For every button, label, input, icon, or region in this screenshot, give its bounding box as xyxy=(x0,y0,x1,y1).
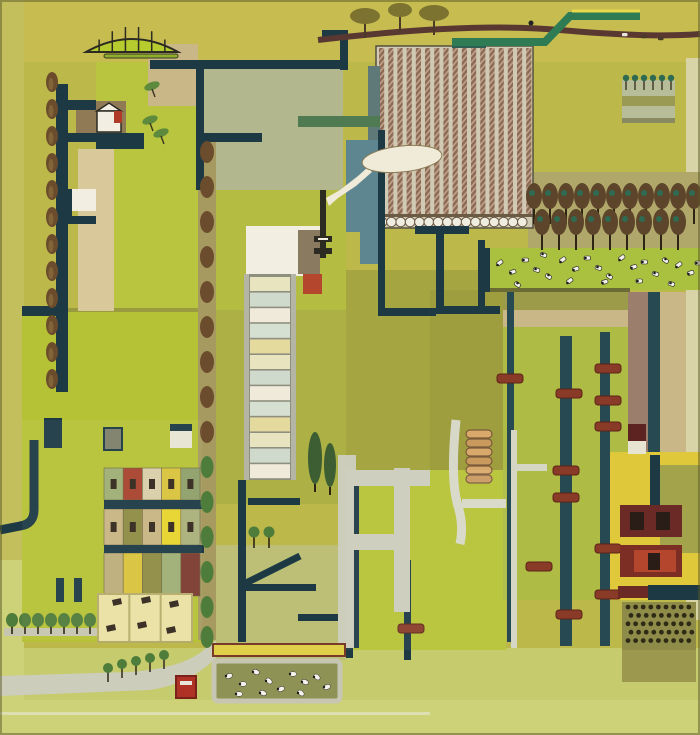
orchard-tree xyxy=(534,209,550,235)
road-tree-green xyxy=(201,491,214,513)
orchard-leaf xyxy=(609,190,615,196)
greenhouse-band xyxy=(250,417,290,431)
vine-dot xyxy=(651,630,656,635)
scallop-bump xyxy=(433,217,443,227)
vine-dot xyxy=(659,630,664,635)
vine-dot xyxy=(674,630,679,635)
crop-stripe xyxy=(416,48,421,216)
orchard-tree xyxy=(653,209,669,235)
vine-dot xyxy=(644,630,649,635)
vine-dot xyxy=(679,621,684,626)
vine-dot xyxy=(633,621,638,626)
vine-dot xyxy=(641,605,646,610)
crop-stripe xyxy=(453,48,458,216)
scallop-bump xyxy=(499,217,509,227)
field-stripes xyxy=(379,48,531,216)
vine-dot xyxy=(679,638,684,643)
sheep-head xyxy=(323,686,325,688)
cow-patch xyxy=(630,267,633,270)
vine-dot xyxy=(656,621,661,626)
railway-tie xyxy=(595,364,621,373)
crop-stripe xyxy=(407,48,412,216)
scallop-bump xyxy=(508,217,518,227)
poplar-highlight xyxy=(49,375,54,387)
curve-tree xyxy=(117,659,127,669)
road-tree-brown xyxy=(200,281,214,303)
railway-tie xyxy=(553,466,579,475)
road-tree-brown xyxy=(200,176,214,198)
crop-stripe xyxy=(508,48,513,216)
vine-dot xyxy=(664,638,669,643)
poplar-highlight xyxy=(49,105,54,117)
vine-dot xyxy=(626,605,631,610)
road-center-horizontal xyxy=(378,308,436,316)
tiny-vehicle xyxy=(658,37,664,40)
cow-patch xyxy=(601,282,604,285)
tree-blob xyxy=(388,3,412,17)
vine-dot xyxy=(682,613,687,618)
scallop-bump xyxy=(471,217,481,227)
orchard-tree xyxy=(558,183,574,209)
orchard-leaf xyxy=(529,190,535,196)
railway-tie xyxy=(526,562,552,571)
vine-dot xyxy=(648,621,653,626)
orchard-leaf xyxy=(571,216,577,222)
cow-patch xyxy=(572,269,575,272)
road-left-spur-mid xyxy=(22,306,62,316)
painting-canvas xyxy=(0,0,700,735)
mini-tree xyxy=(659,75,665,81)
cow-patch xyxy=(636,280,639,283)
pasture-bottom-line xyxy=(487,288,630,292)
vine-dot xyxy=(671,605,676,610)
mini-tree xyxy=(668,75,674,81)
mini-orchard-band xyxy=(622,96,675,106)
greenhouse-band xyxy=(250,464,290,478)
cow-patch xyxy=(516,282,519,285)
scallop-bump xyxy=(387,217,397,227)
cow-patch xyxy=(687,273,690,276)
vine-dot xyxy=(689,613,694,618)
vine-dot xyxy=(671,621,676,626)
red-van-window xyxy=(180,681,192,685)
arch-segment xyxy=(466,430,492,438)
vine-dot xyxy=(648,638,653,643)
awning-underline xyxy=(104,54,178,58)
greenhouse-band xyxy=(250,324,290,338)
crop-stripe xyxy=(517,48,522,216)
tree-lined-road-trees xyxy=(200,141,214,648)
arch-segment xyxy=(466,457,492,465)
crop-stripe xyxy=(499,48,504,216)
mini-tree xyxy=(623,75,629,81)
right-plot-olive-band xyxy=(503,292,630,310)
orchard-leaf xyxy=(561,190,567,196)
red-van xyxy=(176,676,196,698)
curve-tree xyxy=(145,653,155,663)
road-h-bottom xyxy=(436,306,500,314)
greenhouse-band xyxy=(250,402,290,416)
orchard-leaf xyxy=(673,190,679,196)
road-tree-green xyxy=(201,456,214,478)
crop-stripe xyxy=(443,48,448,216)
cow-patch xyxy=(496,264,499,267)
greenhouse-band xyxy=(250,293,290,307)
orchard-leaf xyxy=(605,216,611,222)
greenhouse-band xyxy=(250,449,290,463)
notch-border-h xyxy=(64,216,96,224)
poplar-highlight xyxy=(49,213,54,225)
cow-patch xyxy=(534,268,537,271)
orchard-leaf xyxy=(689,190,695,196)
scallop-bump xyxy=(405,217,415,227)
orchard-leaf xyxy=(641,190,647,196)
orchard-tree xyxy=(526,183,542,209)
vine-dot xyxy=(644,613,649,618)
cow-patch xyxy=(675,266,678,269)
orchard-leaf xyxy=(537,216,543,222)
vine-dot xyxy=(633,605,638,610)
road-tree-brown xyxy=(200,246,214,268)
orchard-leaf xyxy=(593,190,599,196)
speckle-plot-lower xyxy=(622,650,696,682)
road-left-vertical xyxy=(56,84,68,392)
curve-tree xyxy=(159,650,169,660)
vine-dot xyxy=(667,613,672,618)
mini-tree xyxy=(641,75,647,81)
sheep-head xyxy=(235,693,237,695)
bottom-horizontal-1 xyxy=(244,584,316,591)
scallop-bump xyxy=(518,217,528,227)
orchard-tree xyxy=(602,209,618,235)
poplar-highlight xyxy=(49,132,54,144)
cow-patch xyxy=(522,259,525,262)
scallop-bump xyxy=(415,217,425,227)
orchard-leaf xyxy=(625,190,631,196)
tiny-figure xyxy=(529,21,534,26)
poplar-highlight xyxy=(49,240,54,252)
orchard-tree xyxy=(551,209,567,235)
railway-tie xyxy=(595,544,621,553)
vine-dot xyxy=(633,638,638,643)
orchard-leaf xyxy=(656,216,662,222)
vine-dot xyxy=(629,630,634,635)
white-notch xyxy=(72,189,96,211)
railway-tie xyxy=(595,590,621,599)
red-building xyxy=(303,274,322,294)
road-sage-spur xyxy=(200,133,262,142)
crop-stripe xyxy=(480,48,485,216)
vine-dot xyxy=(659,613,664,618)
orchard-tree xyxy=(638,183,654,209)
sheep-head xyxy=(225,675,227,677)
curve-tree xyxy=(103,663,113,673)
mini-tree xyxy=(650,75,656,81)
cow-patch xyxy=(559,261,562,264)
mini-orchard-path xyxy=(622,118,675,123)
sheep-head xyxy=(313,676,315,678)
poplar-highlight xyxy=(49,78,54,90)
greenhouse-band xyxy=(250,371,290,385)
sheep-pen xyxy=(214,661,340,701)
estate-red-door xyxy=(648,553,660,570)
texture-wash-2 xyxy=(346,470,506,650)
road-tree-brown xyxy=(200,421,214,443)
sheep-head xyxy=(301,681,303,683)
railway-tie xyxy=(553,493,579,502)
greenhouse-band xyxy=(250,308,290,322)
railway-tie xyxy=(595,422,621,431)
field-tree xyxy=(264,527,275,538)
vine-dot xyxy=(641,638,646,643)
bottom-left-vertical xyxy=(238,480,246,642)
estate-navy-band xyxy=(648,585,700,600)
greenhouse-rail-left xyxy=(244,274,249,480)
vine-dot xyxy=(671,638,676,643)
road-sage-left-border xyxy=(196,62,204,190)
estate-maroon-block xyxy=(620,505,682,537)
cow-patch xyxy=(618,259,621,262)
road-h-vert2 xyxy=(478,240,485,310)
tiny-vehicle xyxy=(641,35,647,38)
tree-blob xyxy=(350,8,380,24)
green-lower-band xyxy=(298,116,380,127)
cow-patch xyxy=(596,266,599,269)
road-tree-brown xyxy=(200,386,214,408)
vine-dot xyxy=(686,605,691,610)
tan-strip-vertical xyxy=(78,149,114,311)
vine-dot xyxy=(682,630,687,635)
crop-stripe xyxy=(462,48,467,216)
poplar-highlight xyxy=(49,294,54,306)
cow-patch xyxy=(608,274,611,277)
orchard-tree xyxy=(619,209,635,235)
vine-dot xyxy=(656,638,661,643)
vine-dot xyxy=(664,621,669,626)
curve-tree xyxy=(131,656,141,666)
orchard-leaf xyxy=(657,190,663,196)
crop-stripe xyxy=(489,48,494,216)
texture-wash-1 xyxy=(22,420,202,640)
orchard-tree xyxy=(606,183,622,209)
vine-dot xyxy=(656,605,661,610)
arch-segment xyxy=(466,448,492,456)
orchard-leaf xyxy=(673,216,679,222)
orchard-leaf xyxy=(639,216,645,222)
scallop-bump xyxy=(452,217,462,227)
poplar-highlight xyxy=(49,348,54,360)
orchard-tree xyxy=(574,183,590,209)
road-tree-green xyxy=(201,526,214,548)
poplar-highlight xyxy=(49,321,54,333)
cow-patch xyxy=(584,257,587,260)
orchard-tree xyxy=(670,183,686,209)
orchard-leaf xyxy=(622,216,628,222)
pasture-left-border xyxy=(484,248,490,292)
vine-dot xyxy=(626,621,631,626)
aerial-farmland-painting xyxy=(0,0,700,735)
cow-patch xyxy=(566,282,569,285)
orchard-leaf xyxy=(577,190,583,196)
chimney-pole xyxy=(320,190,326,258)
sheep-head xyxy=(277,688,279,690)
vine-dot xyxy=(664,605,669,610)
estate-maroon-door-1 xyxy=(630,512,644,530)
road-top-horizontal xyxy=(150,60,345,69)
railway-tie xyxy=(556,389,582,398)
vine-dot xyxy=(626,638,631,643)
vine-dot xyxy=(651,613,656,618)
greenhouse-rail-right xyxy=(291,274,296,480)
vine-dot xyxy=(667,630,672,635)
crop-stripe xyxy=(425,48,430,216)
sheep-head xyxy=(265,680,267,682)
background-bottom-pale xyxy=(0,700,700,735)
scallop-bump xyxy=(424,217,434,227)
estate-maroon-bar xyxy=(618,586,650,598)
vine-dot xyxy=(648,605,653,610)
right-plot-road-a xyxy=(560,336,572,646)
chimney-crossbar-2 xyxy=(314,248,332,254)
scallop-bump xyxy=(396,217,406,227)
greenhouse-band xyxy=(250,386,290,400)
scallop-bump xyxy=(489,217,499,227)
cow-patch xyxy=(695,262,698,265)
orchard-leaf xyxy=(554,216,560,222)
orchard-tree xyxy=(568,209,584,235)
cow-patch xyxy=(669,282,672,285)
poplar-highlight xyxy=(49,267,54,279)
orchard-tree xyxy=(670,209,686,235)
scallop-bump xyxy=(443,217,453,227)
vine-dot xyxy=(686,638,691,643)
road-tree-green xyxy=(201,561,214,583)
vine-dot xyxy=(674,613,679,618)
orchard-leaf xyxy=(588,216,594,222)
crop-stripe xyxy=(434,48,439,216)
road-tree-green xyxy=(201,596,214,618)
greenhouse-band xyxy=(250,339,290,353)
orchard-tree xyxy=(585,209,601,235)
sheep-head xyxy=(259,692,261,694)
scallop-bump xyxy=(461,217,471,227)
orchard-tree xyxy=(654,183,670,209)
small-white-block xyxy=(628,441,646,454)
mini-tree xyxy=(632,75,638,81)
road-tree-brown xyxy=(200,141,214,163)
vine-dot xyxy=(641,621,646,626)
crop-stripe xyxy=(397,48,402,216)
cypress-tree xyxy=(308,432,322,484)
right-plot-tan-band xyxy=(503,310,630,327)
poplar-highlight xyxy=(49,186,54,198)
crop-stripe xyxy=(388,48,393,216)
vine-dot xyxy=(679,605,684,610)
white-road-right-branch xyxy=(511,464,547,471)
yellow-strip-road xyxy=(213,644,345,656)
cow-patch xyxy=(541,253,544,256)
cow-patch xyxy=(641,261,644,264)
vine-dot xyxy=(686,621,691,626)
vine-dot xyxy=(636,613,641,618)
cow-patch xyxy=(547,274,550,277)
sheep-head xyxy=(297,692,299,694)
cow-patch xyxy=(509,272,512,275)
road-left-spur-top xyxy=(62,100,96,110)
greenhouse-band xyxy=(250,433,290,447)
orchard-tree xyxy=(622,183,638,209)
road-tree-brown xyxy=(200,211,214,233)
orchard-tree xyxy=(590,183,606,209)
greenhouse-band xyxy=(250,277,290,291)
road-h-vert1 xyxy=(436,226,444,314)
chimney-crossbar-gap xyxy=(318,238,328,240)
field-tree xyxy=(249,527,260,538)
white-road-right xyxy=(511,430,517,648)
poplar-highlight xyxy=(49,159,54,171)
scallop-bump xyxy=(480,217,490,227)
bottom-horizontal-3 xyxy=(248,498,300,505)
crop-stripe xyxy=(471,48,476,216)
sheep-head xyxy=(289,673,291,675)
row-tree xyxy=(6,613,18,627)
railway-tie xyxy=(497,374,523,383)
small-maroon-block xyxy=(628,424,646,441)
striped-field-bottom-line xyxy=(376,214,533,217)
cow-patch xyxy=(664,258,667,261)
orchard-tree xyxy=(542,183,558,209)
railway-tie xyxy=(595,396,621,405)
vine-dot xyxy=(636,630,641,635)
tiny-vehicle xyxy=(622,33,628,36)
railway-tie xyxy=(556,610,582,619)
arch-segment xyxy=(466,439,492,447)
road-tree-green xyxy=(201,626,214,648)
orchard-leaf xyxy=(545,190,551,196)
cypress-tree xyxy=(324,443,336,487)
vine-dot xyxy=(689,630,694,635)
bottom-pale-line xyxy=(0,712,430,715)
road-tree-brown xyxy=(200,351,214,373)
road-tree-brown xyxy=(200,316,214,338)
estate-navy-bar xyxy=(650,455,660,505)
sheep-head xyxy=(252,671,254,673)
greenhouse-band xyxy=(250,355,290,369)
road-under-house-2 xyxy=(96,133,144,149)
vine-dot xyxy=(629,613,634,618)
cow-patch xyxy=(653,272,656,275)
sheep-head xyxy=(239,683,241,685)
tree-blob xyxy=(419,5,449,21)
farmhouse-red-wing xyxy=(114,111,122,123)
estate-maroon-door-2 xyxy=(656,512,670,530)
orchard-tree xyxy=(636,209,652,235)
